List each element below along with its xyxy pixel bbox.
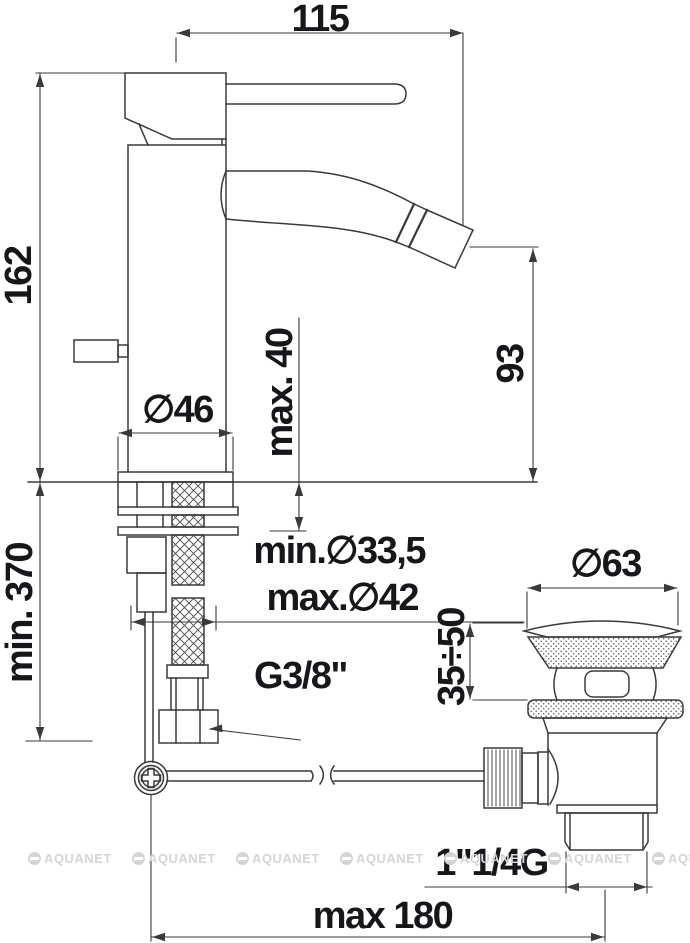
watermark-logo-icon [652,852,665,865]
watermark-text: AQUANET [356,851,424,866]
hose-crimp [167,665,208,678]
washer-top [118,507,238,515]
watermark-text: AQUANET [460,851,528,866]
faucet-head [125,73,226,145]
drain-flange [557,805,657,813]
faucet-handle-lever [226,84,406,104]
watermark: AQUANET [132,851,216,866]
watermark: AQUANET [236,851,320,866]
watermark-text: AQUANET [44,851,112,866]
watermark: AQUANET [28,851,112,866]
drain-thread [565,813,648,850]
washer-bottom [118,527,238,535]
technical-drawing-canvas: 115 162 min. 370 max. 40 93 ∅46 min.∅33,… [0,0,690,943]
watermark-logo-icon [236,852,249,865]
watermark-text: AQUANET [252,851,320,866]
watermark: AQUANET [340,851,424,866]
drawing-linework [0,0,690,943]
watermark-text: AQUANET [148,851,216,866]
pivot-screw [135,762,168,795]
mounting-block [127,537,166,573]
drain-waist-slot [585,671,629,697]
faucet-body [74,139,233,482]
watermark-logo-icon [340,852,353,865]
faucet-spout [221,171,473,268]
watermark-text: AQUANET [564,851,632,866]
hose-nut [159,710,218,743]
watermark-logo-icon [444,852,457,865]
watermark-logo-icon [132,852,145,865]
waste-drain-assembly [484,621,683,850]
base-plate [118,472,233,482]
watermark: AQUANET [548,851,632,866]
side-pin [74,340,118,362]
drain-cap [524,621,680,637]
watermark-logo-icon [28,852,41,865]
rod-break-symbol [320,766,334,784]
watermark-logo-icon [548,852,561,865]
watermark: AQUANET [652,851,690,866]
watermark-text: AQUANET [668,851,690,866]
flexible-hose [159,535,218,743]
watermark: AQUANET [444,851,528,866]
